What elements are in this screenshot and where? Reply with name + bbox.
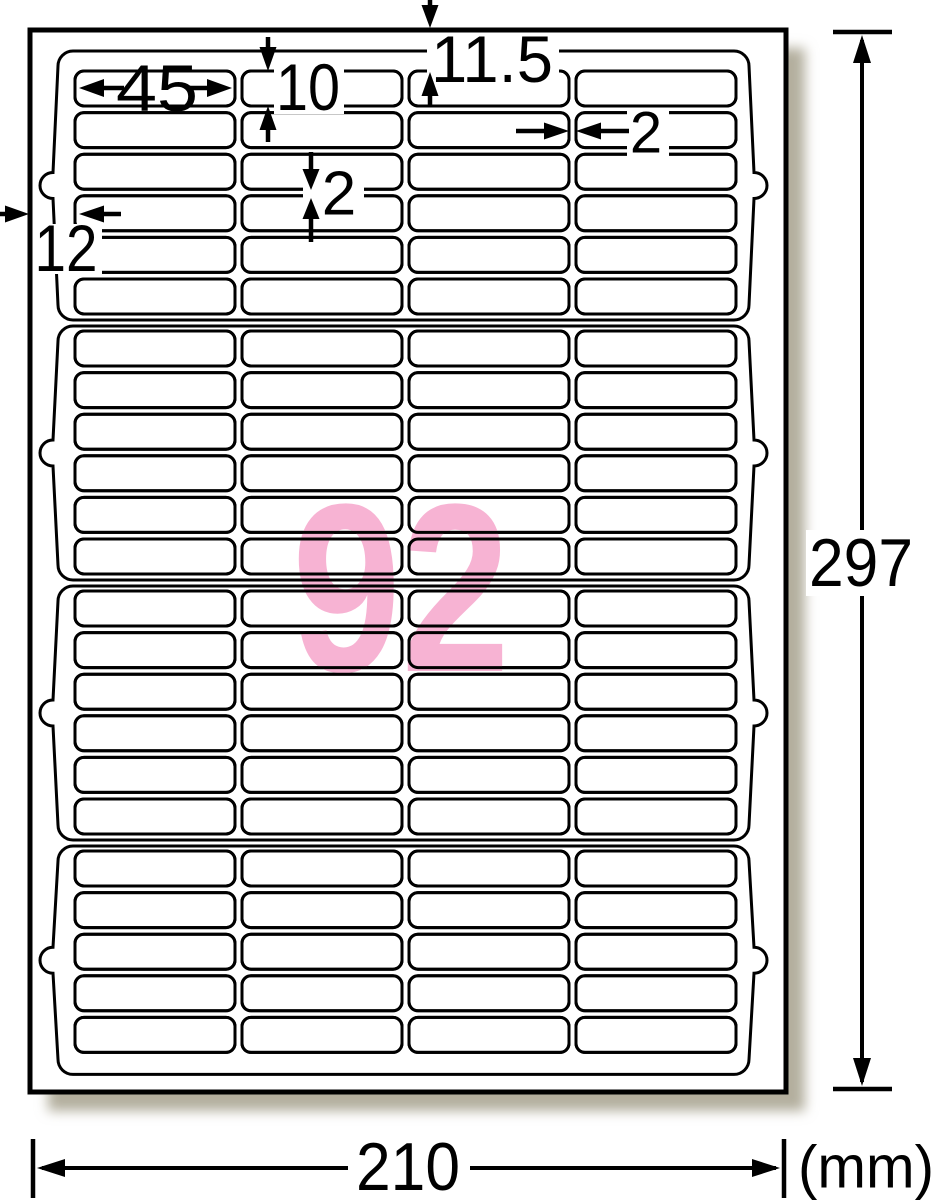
label-cell xyxy=(242,757,402,792)
label-cell xyxy=(576,237,736,272)
label-cell xyxy=(75,674,235,709)
sheet-diagram-svg: 92 xyxy=(0,0,950,1200)
label-cell xyxy=(409,237,569,272)
label-cell xyxy=(242,279,402,314)
label-cell xyxy=(576,893,736,928)
width-dim-left-arrow-icon xyxy=(37,1159,65,1177)
label-cell xyxy=(576,331,736,366)
label-cell xyxy=(576,373,736,408)
label-cell xyxy=(75,539,235,574)
label-cell xyxy=(75,633,235,668)
label-cell xyxy=(75,331,235,366)
sheet-width-value: 210 xyxy=(356,1129,460,1200)
label-cell xyxy=(75,373,235,408)
label-cell xyxy=(75,591,235,626)
label-cell xyxy=(75,497,235,532)
label-cell xyxy=(75,934,235,969)
label-cell xyxy=(576,279,736,314)
label-cell xyxy=(576,976,736,1011)
label-sheet-diagram: 92 xyxy=(0,0,950,1200)
width-dim-right-arrow-icon xyxy=(752,1159,780,1177)
label-cell xyxy=(75,757,235,792)
unit-label: (mm) xyxy=(798,1134,934,1200)
label-cell xyxy=(576,757,736,792)
label-width-value: 45 xyxy=(116,51,198,125)
height-dim-down-arrow-icon xyxy=(853,1058,871,1086)
label-cell xyxy=(75,414,235,449)
label-cell xyxy=(576,799,736,834)
row-gap-value: 2 xyxy=(322,160,356,229)
label-cell xyxy=(242,1017,402,1052)
label-cell xyxy=(75,799,235,834)
label-cell xyxy=(242,373,402,408)
label-cell xyxy=(409,279,569,314)
side-margin-value: 12 xyxy=(35,211,98,285)
label-cell xyxy=(576,196,736,231)
label-cell xyxy=(409,1017,569,1052)
label-cell xyxy=(576,497,736,532)
top-margin-value: 11.5 xyxy=(431,22,553,96)
label-cell xyxy=(576,934,736,969)
label-cell xyxy=(242,331,402,366)
label-cell xyxy=(75,976,235,1011)
label-cell xyxy=(242,976,402,1011)
label-cell xyxy=(576,1017,736,1052)
label-cell xyxy=(75,716,235,751)
label-cell xyxy=(242,414,402,449)
label-cell xyxy=(576,633,736,668)
height-dim-up-arrow-icon xyxy=(853,35,871,63)
label-cell xyxy=(242,237,402,272)
label-cell xyxy=(409,893,569,928)
label-cell xyxy=(576,456,736,491)
label-cell xyxy=(409,373,569,408)
label-cell xyxy=(576,591,736,626)
label-cell xyxy=(242,799,402,834)
label-cell xyxy=(242,893,402,928)
label-cell xyxy=(75,851,235,886)
label-cell xyxy=(409,757,569,792)
label-cell xyxy=(409,799,569,834)
label-cell xyxy=(409,851,569,886)
label-cell xyxy=(409,331,569,366)
label-cell xyxy=(75,154,235,189)
sheet-height-value: 297 xyxy=(809,525,913,601)
label-cell xyxy=(409,934,569,969)
label-cell xyxy=(576,539,736,574)
label-cell xyxy=(75,1017,235,1052)
label-cell xyxy=(576,851,736,886)
label-cell xyxy=(242,934,402,969)
label-cell xyxy=(576,674,736,709)
label-cell xyxy=(409,414,569,449)
label-cell xyxy=(409,976,569,1011)
label-cell xyxy=(75,279,235,314)
label-cell xyxy=(576,716,736,751)
label-height-value: 10 xyxy=(276,50,340,124)
label-cell xyxy=(75,456,235,491)
side-margin-right-arrow-icon xyxy=(5,206,29,223)
label-cell xyxy=(576,414,736,449)
label-cell xyxy=(409,196,569,231)
label-cell xyxy=(75,893,235,928)
label-cell xyxy=(242,851,402,886)
label-cell xyxy=(409,154,569,189)
col-gap-value: 2 xyxy=(630,101,662,166)
